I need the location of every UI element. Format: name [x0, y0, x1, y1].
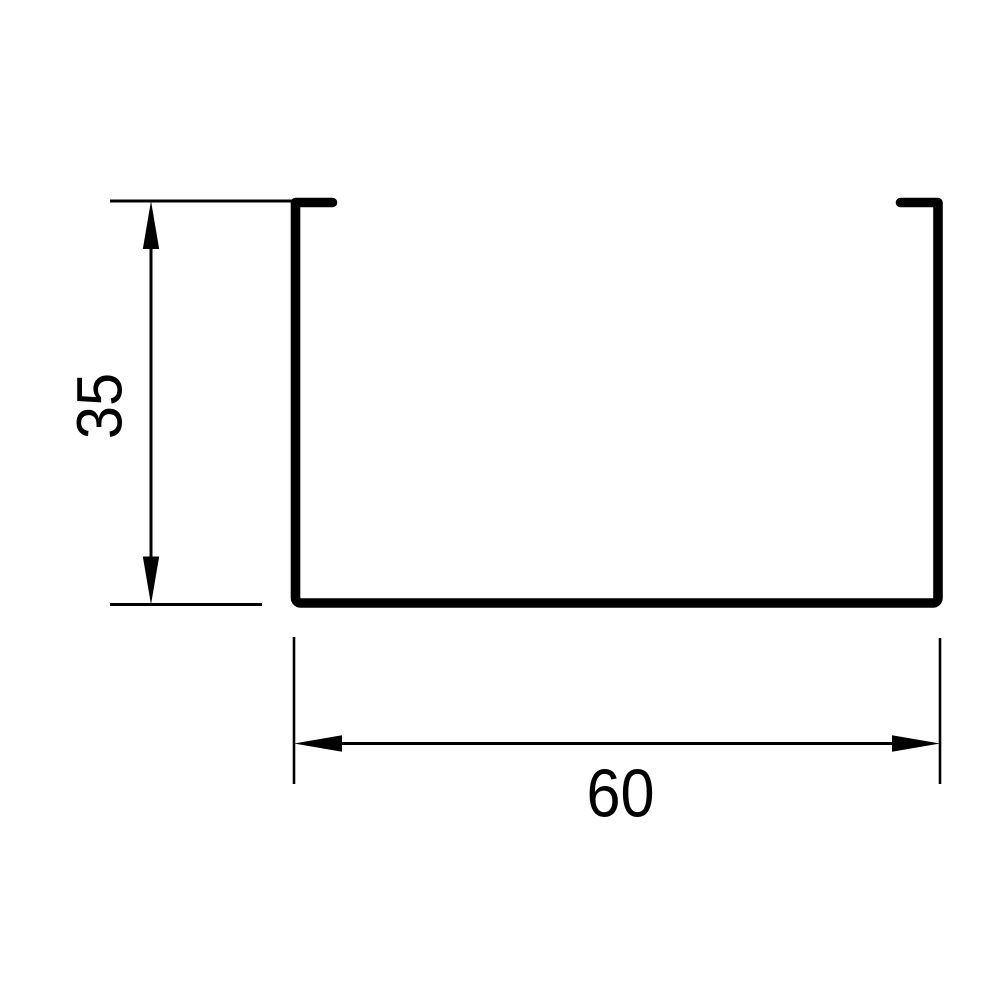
- svg-text:60: 60: [586, 755, 654, 832]
- svg-text:35: 35: [65, 373, 136, 439]
